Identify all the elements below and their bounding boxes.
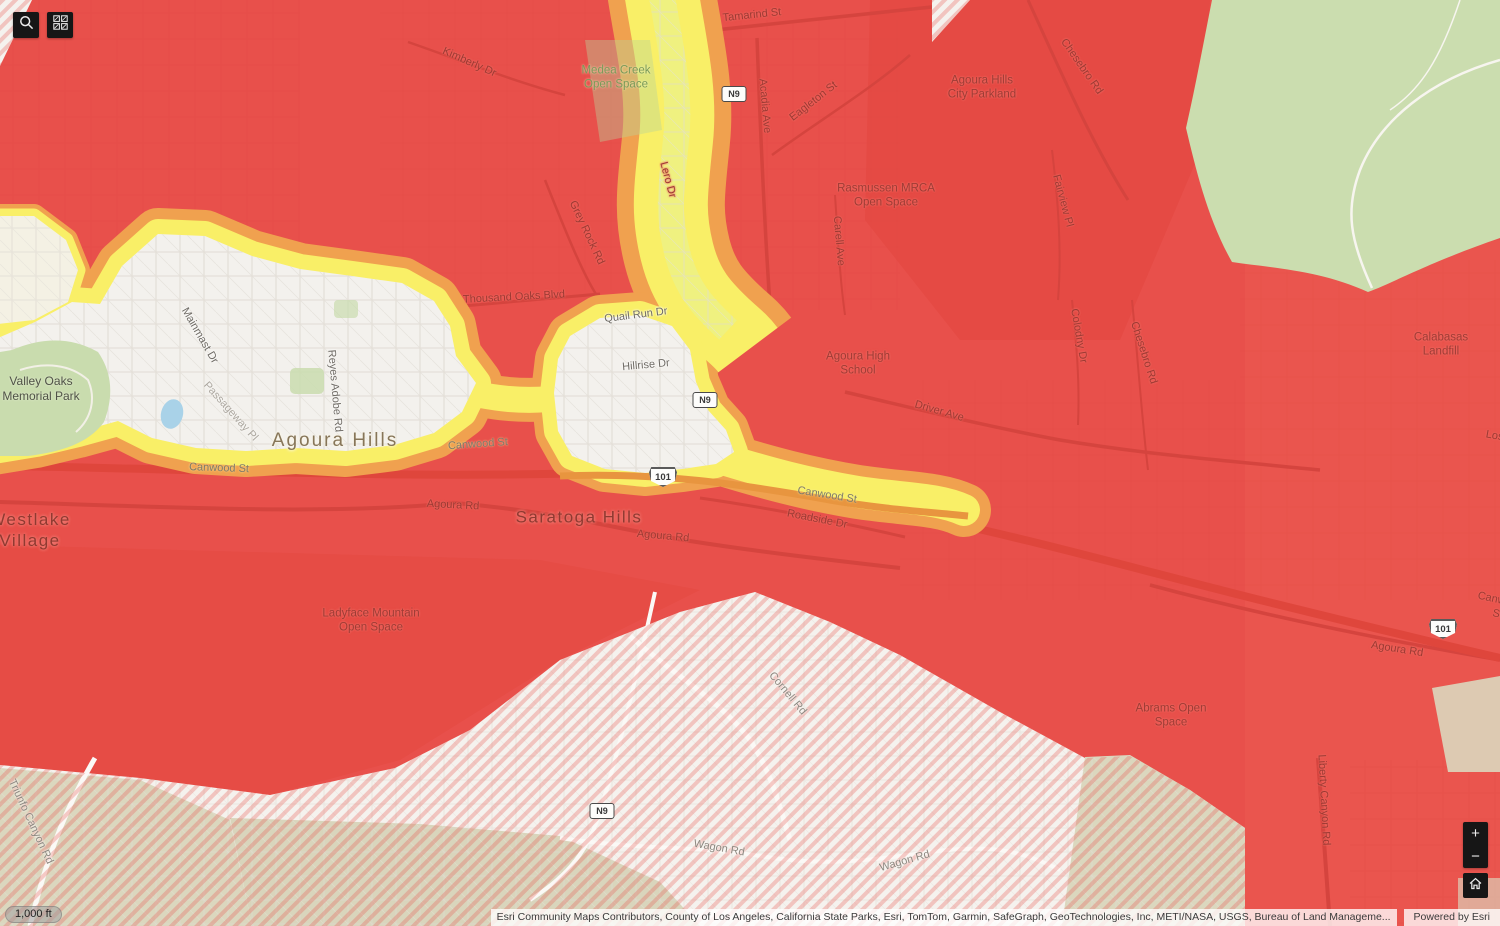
map-graphics: [0, 0, 1500, 926]
home-icon: [1469, 877, 1482, 895]
attribution-bar: Esri Community Maps Contributors, County…: [491, 909, 1500, 926]
shield-text: 101: [1435, 624, 1451, 635]
map-canvas[interactable]: Tamarind St Kimberly Dr Medea Creek Open…: [0, 0, 1500, 926]
zoom-control: + −: [1463, 822, 1488, 868]
zoom-out-button[interactable]: −: [1463, 845, 1488, 868]
route-shield-n9-1: N9: [722, 86, 747, 102]
powered-by-esri: Powered by Esri: [1404, 909, 1500, 926]
basemap-gallery-button[interactable]: [47, 12, 73, 38]
search-button[interactable]: [13, 12, 39, 38]
shield-text: N9: [699, 395, 711, 405]
attribution-text: Esri Community Maps Contributors, County…: [491, 909, 1397, 926]
zoom-in-button[interactable]: +: [1463, 822, 1488, 845]
home-button[interactable]: [1463, 873, 1488, 898]
shield-text: 101: [655, 472, 671, 483]
shield-text: N9: [728, 89, 740, 99]
route-shield-n9-2: N9: [693, 392, 718, 408]
search-icon: [19, 15, 34, 35]
route-shield-n9-3: N9: [590, 803, 615, 819]
shield-text: N9: [596, 806, 608, 816]
basemap-grid-icon: [53, 15, 68, 35]
scale-bar: 1,000 ft: [5, 906, 62, 923]
